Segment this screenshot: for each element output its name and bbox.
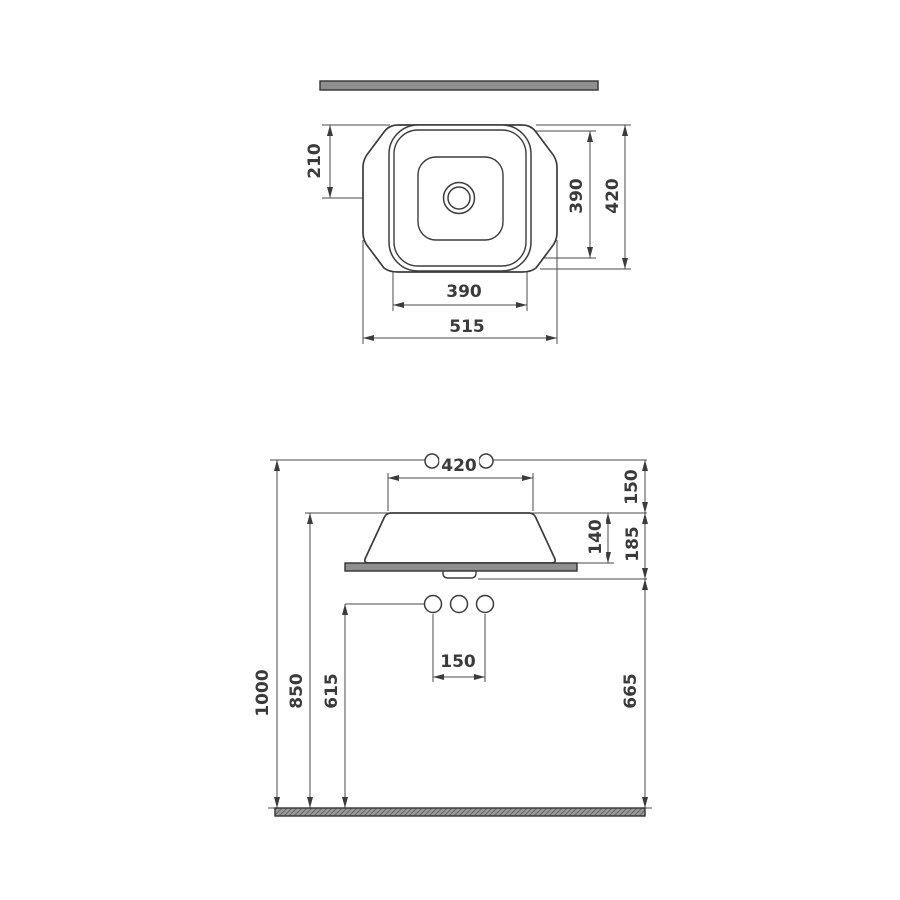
dim-label-overall-height: 1000 — [255, 667, 273, 718]
wall-edge-bar — [320, 81, 598, 90]
dim-label-basin-top-width: 420 — [439, 458, 479, 476]
side-view — [268, 454, 652, 816]
drain-inner-circle — [448, 187, 470, 209]
dim-label-rim-to-counter-bottom: 185 — [625, 524, 643, 564]
dim-label-inner-width: 390 — [444, 284, 484, 302]
dim-label-basin-above-counter: 140 — [588, 517, 606, 557]
faucet-hole-left — [425, 596, 442, 613]
faucet-hole-right — [477, 596, 494, 613]
faucet-hole-center — [451, 596, 468, 613]
dim-label-top-to-rim: 150 — [624, 467, 642, 507]
dim-label-hole-spacing: 150 — [438, 654, 478, 672]
floor-bar — [275, 808, 645, 816]
countertop-bar — [345, 563, 577, 571]
dim-label-overall-width: 515 — [447, 319, 487, 337]
technical-drawing-page: 210 390 420 390 515 420 150 140 185 1000… — [0, 0, 900, 900]
basin-profile — [365, 513, 555, 563]
reference-circle-left — [425, 454, 439, 468]
dim-label-inner-depth: 390 — [569, 176, 587, 216]
dim-label-under-counter-height: 665 — [623, 671, 641, 711]
dim-label-counter-height: 850 — [289, 671, 307, 711]
reference-circle-right — [479, 454, 493, 468]
dim-label-supply-height: 615 — [324, 671, 342, 711]
drain-fitting — [443, 571, 476, 578]
dim-label-drain-offset: 210 — [307, 141, 325, 181]
drawing-canvas — [0, 0, 900, 900]
dim-label-overall-depth: 420 — [605, 176, 623, 216]
